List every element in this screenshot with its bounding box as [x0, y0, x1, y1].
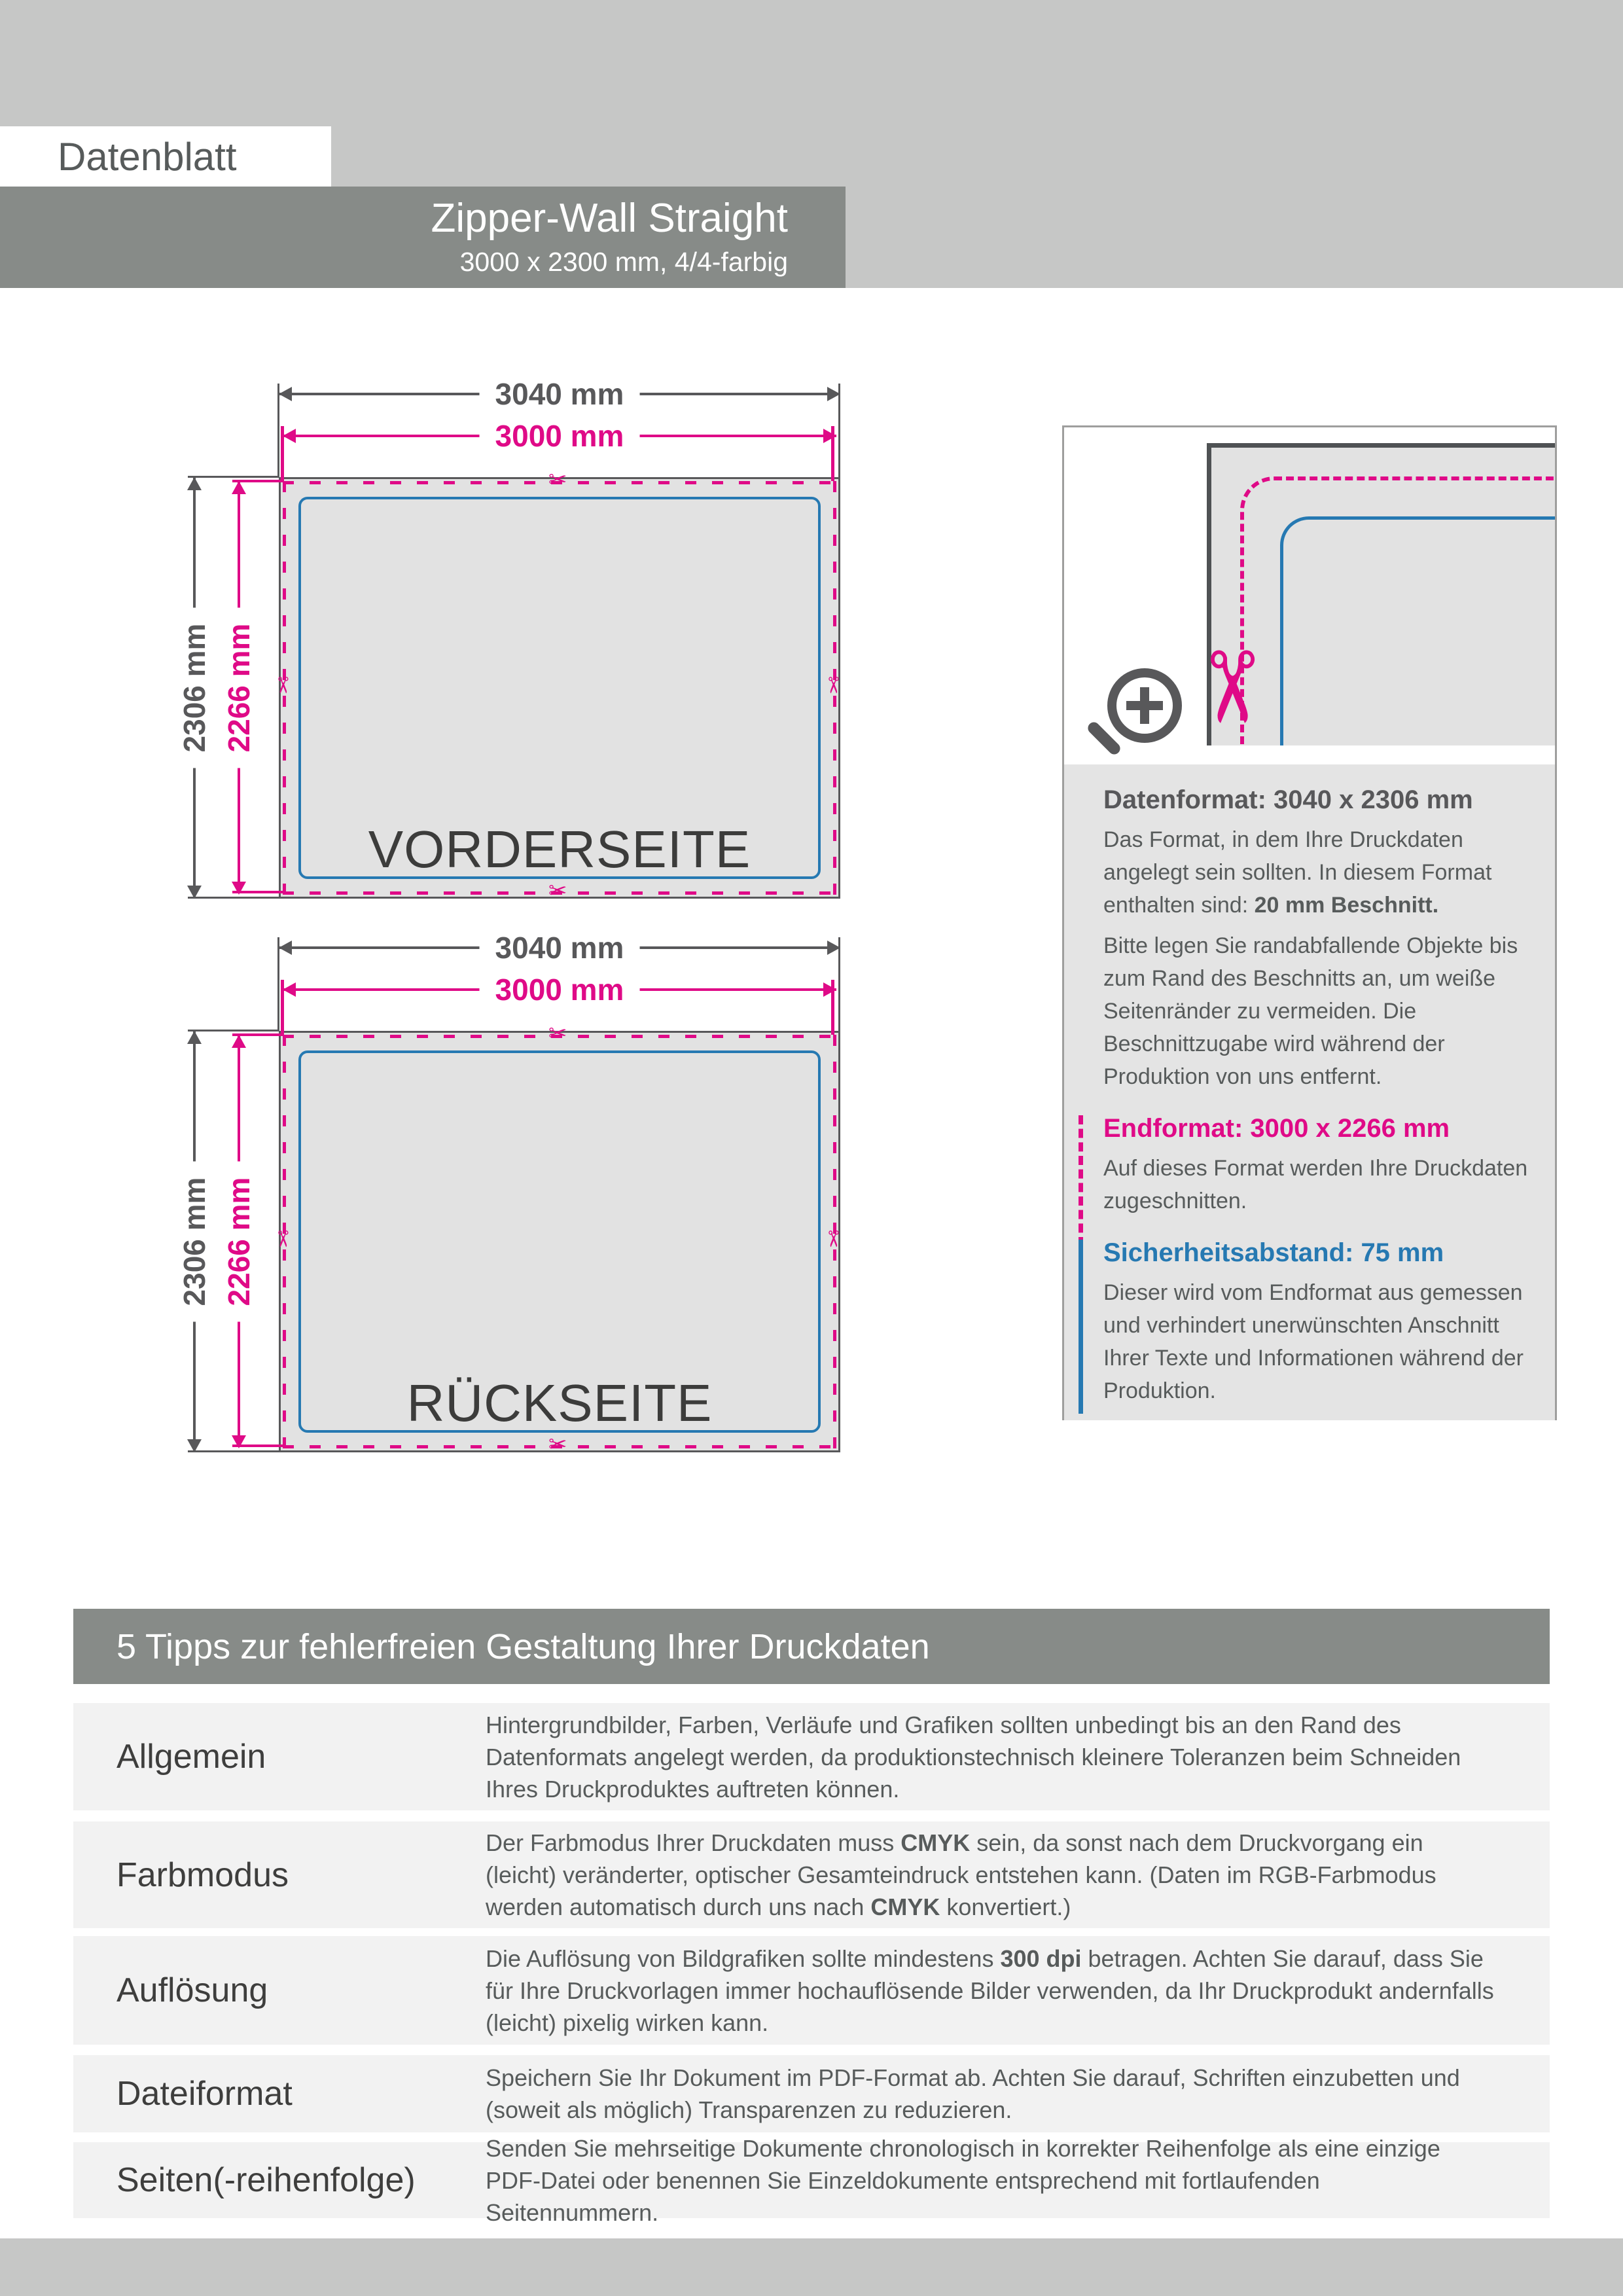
arrow-down-icon — [232, 1435, 246, 1448]
cut-mark-icon: ✂ — [548, 1433, 567, 1456]
tip-row-dateiformat: Dateiformat Speichern Sie Ihr Dokument i… — [73, 2055, 1550, 2132]
endformat-heading: Endformat: 3000 x 2266 mm — [1103, 1113, 1533, 1144]
arrow-up-icon — [187, 1031, 202, 1044]
tip-row-text: Hintergrundbilder, Farben, Verläufe und … — [486, 1709, 1497, 1805]
tips-banner: 5 Tipps zur fehlerfreien Gestaltung Ihre… — [73, 1609, 1550, 1684]
product-subtitle: 3000 x 2300 mm, 4/4-farbig — [460, 247, 788, 278]
arrow-left-icon — [279, 941, 292, 955]
extension-line — [831, 980, 834, 1035]
tip-row-label: Dateiformat — [73, 2074, 486, 2113]
arrow-up-icon — [232, 1035, 246, 1048]
sheet-type-box: Datenblatt — [0, 126, 331, 187]
endformat-paragraph: Auf dieses Format werden Ihre Druckdaten… — [1103, 1152, 1533, 1217]
arrow-down-icon — [187, 886, 202, 899]
front-side-label: VORDERSEITE — [279, 819, 840, 880]
back-side-label: RÜCKSEITE — [279, 1373, 840, 1433]
extension-line — [281, 980, 284, 1035]
tip-row-text: Die Auflösung von Bildgrafiken sollte mi… — [486, 1943, 1497, 2039]
product-title: Zipper-Wall Straight — [431, 197, 788, 240]
extension-line — [838, 937, 840, 1031]
dataformat-heading: Datenformat: 3040 x 2306 mm — [1103, 784, 1533, 816]
cut-mark-icon: ✂ — [548, 1022, 567, 1045]
extension-line — [281, 426, 284, 481]
dim-final-width-label: 3000 mm — [480, 969, 640, 1010]
dataformat-paragraph: Bitte legen Sie randabfallende Objekte b… — [1103, 929, 1533, 1093]
tip-row-label: Seiten(-reihenfolge) — [73, 2161, 486, 2200]
arrow-left-icon — [279, 387, 292, 401]
dataformat-section: Datenformat: 3040 x 2306 mm Das Format, … — [1103, 784, 1533, 1093]
dim-final-width-label: 3000 mm — [480, 416, 640, 456]
dim-final-height-label: 2266 mm — [219, 608, 259, 768]
scissors-icon: ✂ — [1182, 646, 1280, 728]
tip-row-label: Allgemein — [73, 1737, 486, 1776]
arrow-up-icon — [232, 481, 246, 494]
cut-mark-icon: ✂ — [821, 1230, 844, 1249]
panel-text: Datenformat: 3040 x 2306 mm Das Format, … — [1103, 784, 1533, 1407]
cut-mark-icon: ✂ — [821, 676, 844, 695]
tip-row-text: Speichern Sie Ihr Dokument im PDF-Format… — [486, 2062, 1497, 2126]
extension-line — [277, 384, 279, 477]
front-diagram: 3040 mm 3000 mm 2306 mm 2266 mm ✂ ✂ ✂ ✂ … — [170, 365, 865, 919]
sheet-type-label: Datenblatt — [0, 134, 237, 179]
tip-row-aufloesung: Auflösung Die Auflösung von Bildgrafiken… — [73, 1936, 1550, 2045]
safety-heading: Sicherheitsabstand: 75 mm — [1103, 1237, 1533, 1268]
extension-line — [277, 937, 279, 1031]
product-banner: Zipper-Wall Straight 3000 x 2300 mm, 4/4… — [0, 187, 846, 288]
arrow-up-icon — [187, 477, 202, 490]
extension-line — [831, 426, 834, 481]
dim-final-height-label: 2266 mm — [219, 1162, 259, 1322]
cut-mark-icon: ✂ — [271, 676, 293, 695]
dataformat-paragraph: Das Format, in dem Ihre Druckdaten angel… — [1103, 823, 1533, 922]
tip-row-seitenreihenfolge: Seiten(-reihenfolge) Senden Sie mehrseit… — [73, 2142, 1550, 2218]
safety-margin-corner — [1280, 516, 1555, 745]
arrow-down-icon — [232, 882, 246, 895]
endformat-section: Endformat: 3000 x 2266 mm Auf dieses For… — [1103, 1113, 1533, 1217]
arrow-down-icon — [187, 1439, 202, 1452]
tip-row-label: Farbmodus — [73, 1856, 486, 1895]
tip-row-allgemein: Allgemein Hintergrundbilder, Farben, Ver… — [73, 1703, 1550, 1810]
dim-outer-width-label: 3040 mm — [480, 927, 640, 968]
detail-panel: ✂ Datenformat: 3040 x 2306 mm Das Format… — [1062, 425, 1557, 1420]
magnifier-zoom-icon — [1107, 668, 1182, 743]
tip-row-text: Der Farbmodus Ihrer Druckdaten muss CMYK… — [486, 1827, 1497, 1923]
tip-row-farbmodus: Farbmodus Der Farbmodus Ihrer Druckdaten… — [73, 1821, 1550, 1928]
tip-row-label: Auflösung — [73, 1971, 486, 2010]
cut-mark-icon: ✂ — [271, 1230, 293, 1249]
dim-outer-width-label: 3040 mm — [480, 374, 640, 414]
safety-paragraph: Dieser wird vom Endformat aus gemessen u… — [1103, 1276, 1533, 1407]
tip-row-text: Senden Sie mehrseitige Dokumente chronol… — [486, 2132, 1497, 2229]
cut-mark-icon: ✂ — [548, 469, 567, 491]
arrow-right-icon — [823, 982, 836, 997]
arrow-left-icon — [283, 982, 296, 997]
cut-mark-icon: ✂ — [548, 880, 567, 902]
page-footer — [0, 2238, 1623, 2296]
dim-outer-height-label: 2306 mm — [174, 608, 215, 768]
tips-title: 5 Tipps zur fehlerfreien Gestaltung Ihre… — [73, 1626, 930, 1667]
extension-line — [838, 384, 840, 477]
data-format-edge-line — [1207, 443, 1555, 448]
back-diagram: 3040 mm 3000 mm 2306 mm 2266 mm ✂ ✂ ✂ ✂ … — [170, 919, 865, 1473]
arrow-right-icon — [823, 429, 836, 443]
dim-outer-height-label: 2306 mm — [174, 1162, 215, 1322]
arrow-left-icon — [283, 429, 296, 443]
safety-section: Sicherheitsabstand: 75 mm Dieser wird vo… — [1103, 1237, 1533, 1407]
